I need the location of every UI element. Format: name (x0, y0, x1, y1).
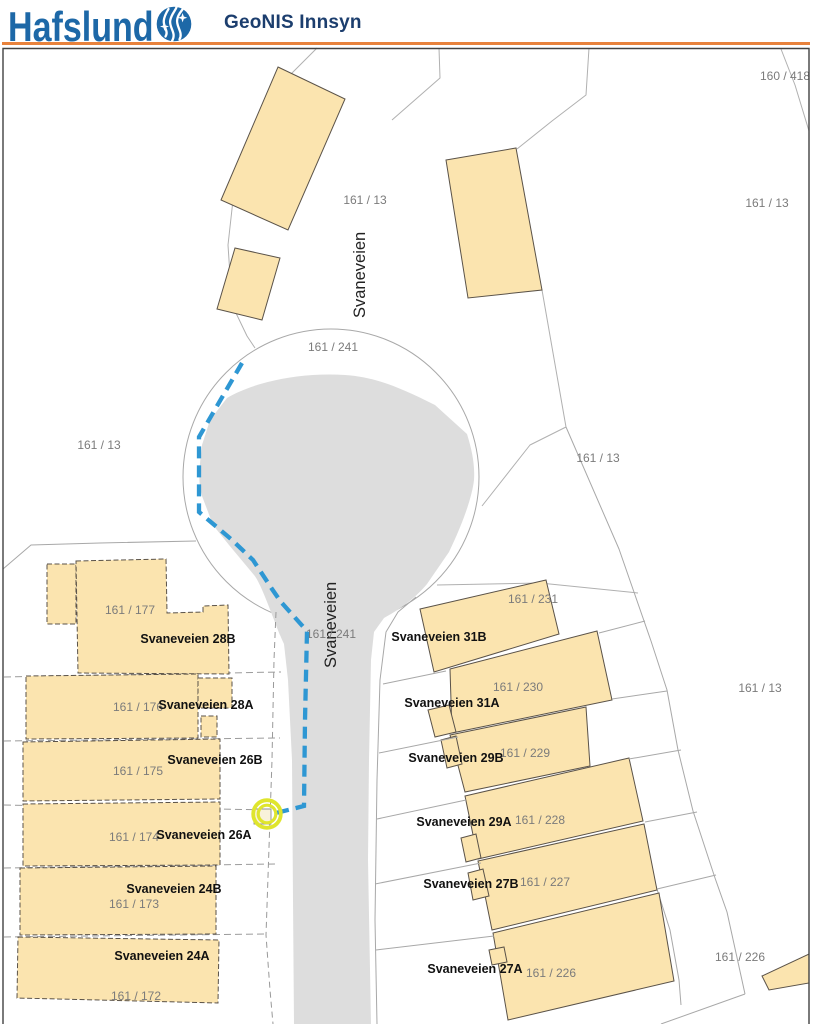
svg-text:Svaneveien 31A: Svaneveien 31A (404, 696, 499, 710)
svg-text:161 / 13: 161 / 13 (343, 193, 387, 207)
svg-text:Svaneveien 29A: Svaneveien 29A (416, 815, 511, 829)
svg-text:161 / 13: 161 / 13 (745, 196, 789, 210)
svg-text:Svaneveien 26B: Svaneveien 26B (167, 753, 262, 767)
svg-text:Svaneveien 28B: Svaneveien 28B (140, 632, 235, 646)
svg-text:Svaneveien: Svaneveien (322, 582, 340, 668)
svg-text:Svaneveien 24B: Svaneveien 24B (126, 882, 221, 896)
svg-text:Svaneveien 31B: Svaneveien 31B (391, 630, 486, 644)
svg-text:161 / 175: 161 / 175 (113, 764, 163, 778)
svg-text:161 / 227: 161 / 227 (520, 875, 570, 889)
svg-text:161 / 13: 161 / 13 (77, 438, 121, 452)
svg-text:161 / 228: 161 / 228 (515, 813, 565, 827)
svg-text:161 / 174: 161 / 174 (109, 830, 159, 844)
svg-text:Svaneveien 27B: Svaneveien 27B (423, 877, 518, 891)
svg-text:161 / 226: 161 / 226 (526, 966, 576, 980)
svg-text:Svaneveien 26A: Svaneveien 26A (156, 828, 251, 842)
svg-text:Svaneveien 28A: Svaneveien 28A (158, 698, 253, 712)
svg-text:Svaneveien: Svaneveien (351, 232, 369, 318)
svg-text:160 / 418: 160 / 418 (760, 69, 810, 83)
svg-text:161 / 241: 161 / 241 (306, 627, 356, 641)
svg-text:161 / 177: 161 / 177 (105, 603, 155, 617)
svg-text:161 / 13: 161 / 13 (738, 681, 782, 695)
svg-text:161 / 13: 161 / 13 (576, 451, 620, 465)
svg-text:Svaneveien 29B: Svaneveien 29B (408, 751, 503, 765)
svg-text:161 / 241: 161 / 241 (308, 340, 358, 354)
svg-text:Svaneveien 27A: Svaneveien 27A (427, 962, 522, 976)
svg-text:161 / 172: 161 / 172 (111, 989, 161, 1003)
svg-text:161 / 229: 161 / 229 (500, 746, 550, 760)
svg-text:161 / 176: 161 / 176 (113, 700, 163, 714)
svg-text:Svaneveien 24A: Svaneveien 24A (114, 949, 209, 963)
svg-text:161 / 231: 161 / 231 (508, 592, 558, 606)
svg-text:161 / 173: 161 / 173 (109, 897, 159, 911)
svg-text:161 / 230: 161 / 230 (493, 680, 543, 694)
svg-text:161 / 226: 161 / 226 (715, 950, 765, 964)
